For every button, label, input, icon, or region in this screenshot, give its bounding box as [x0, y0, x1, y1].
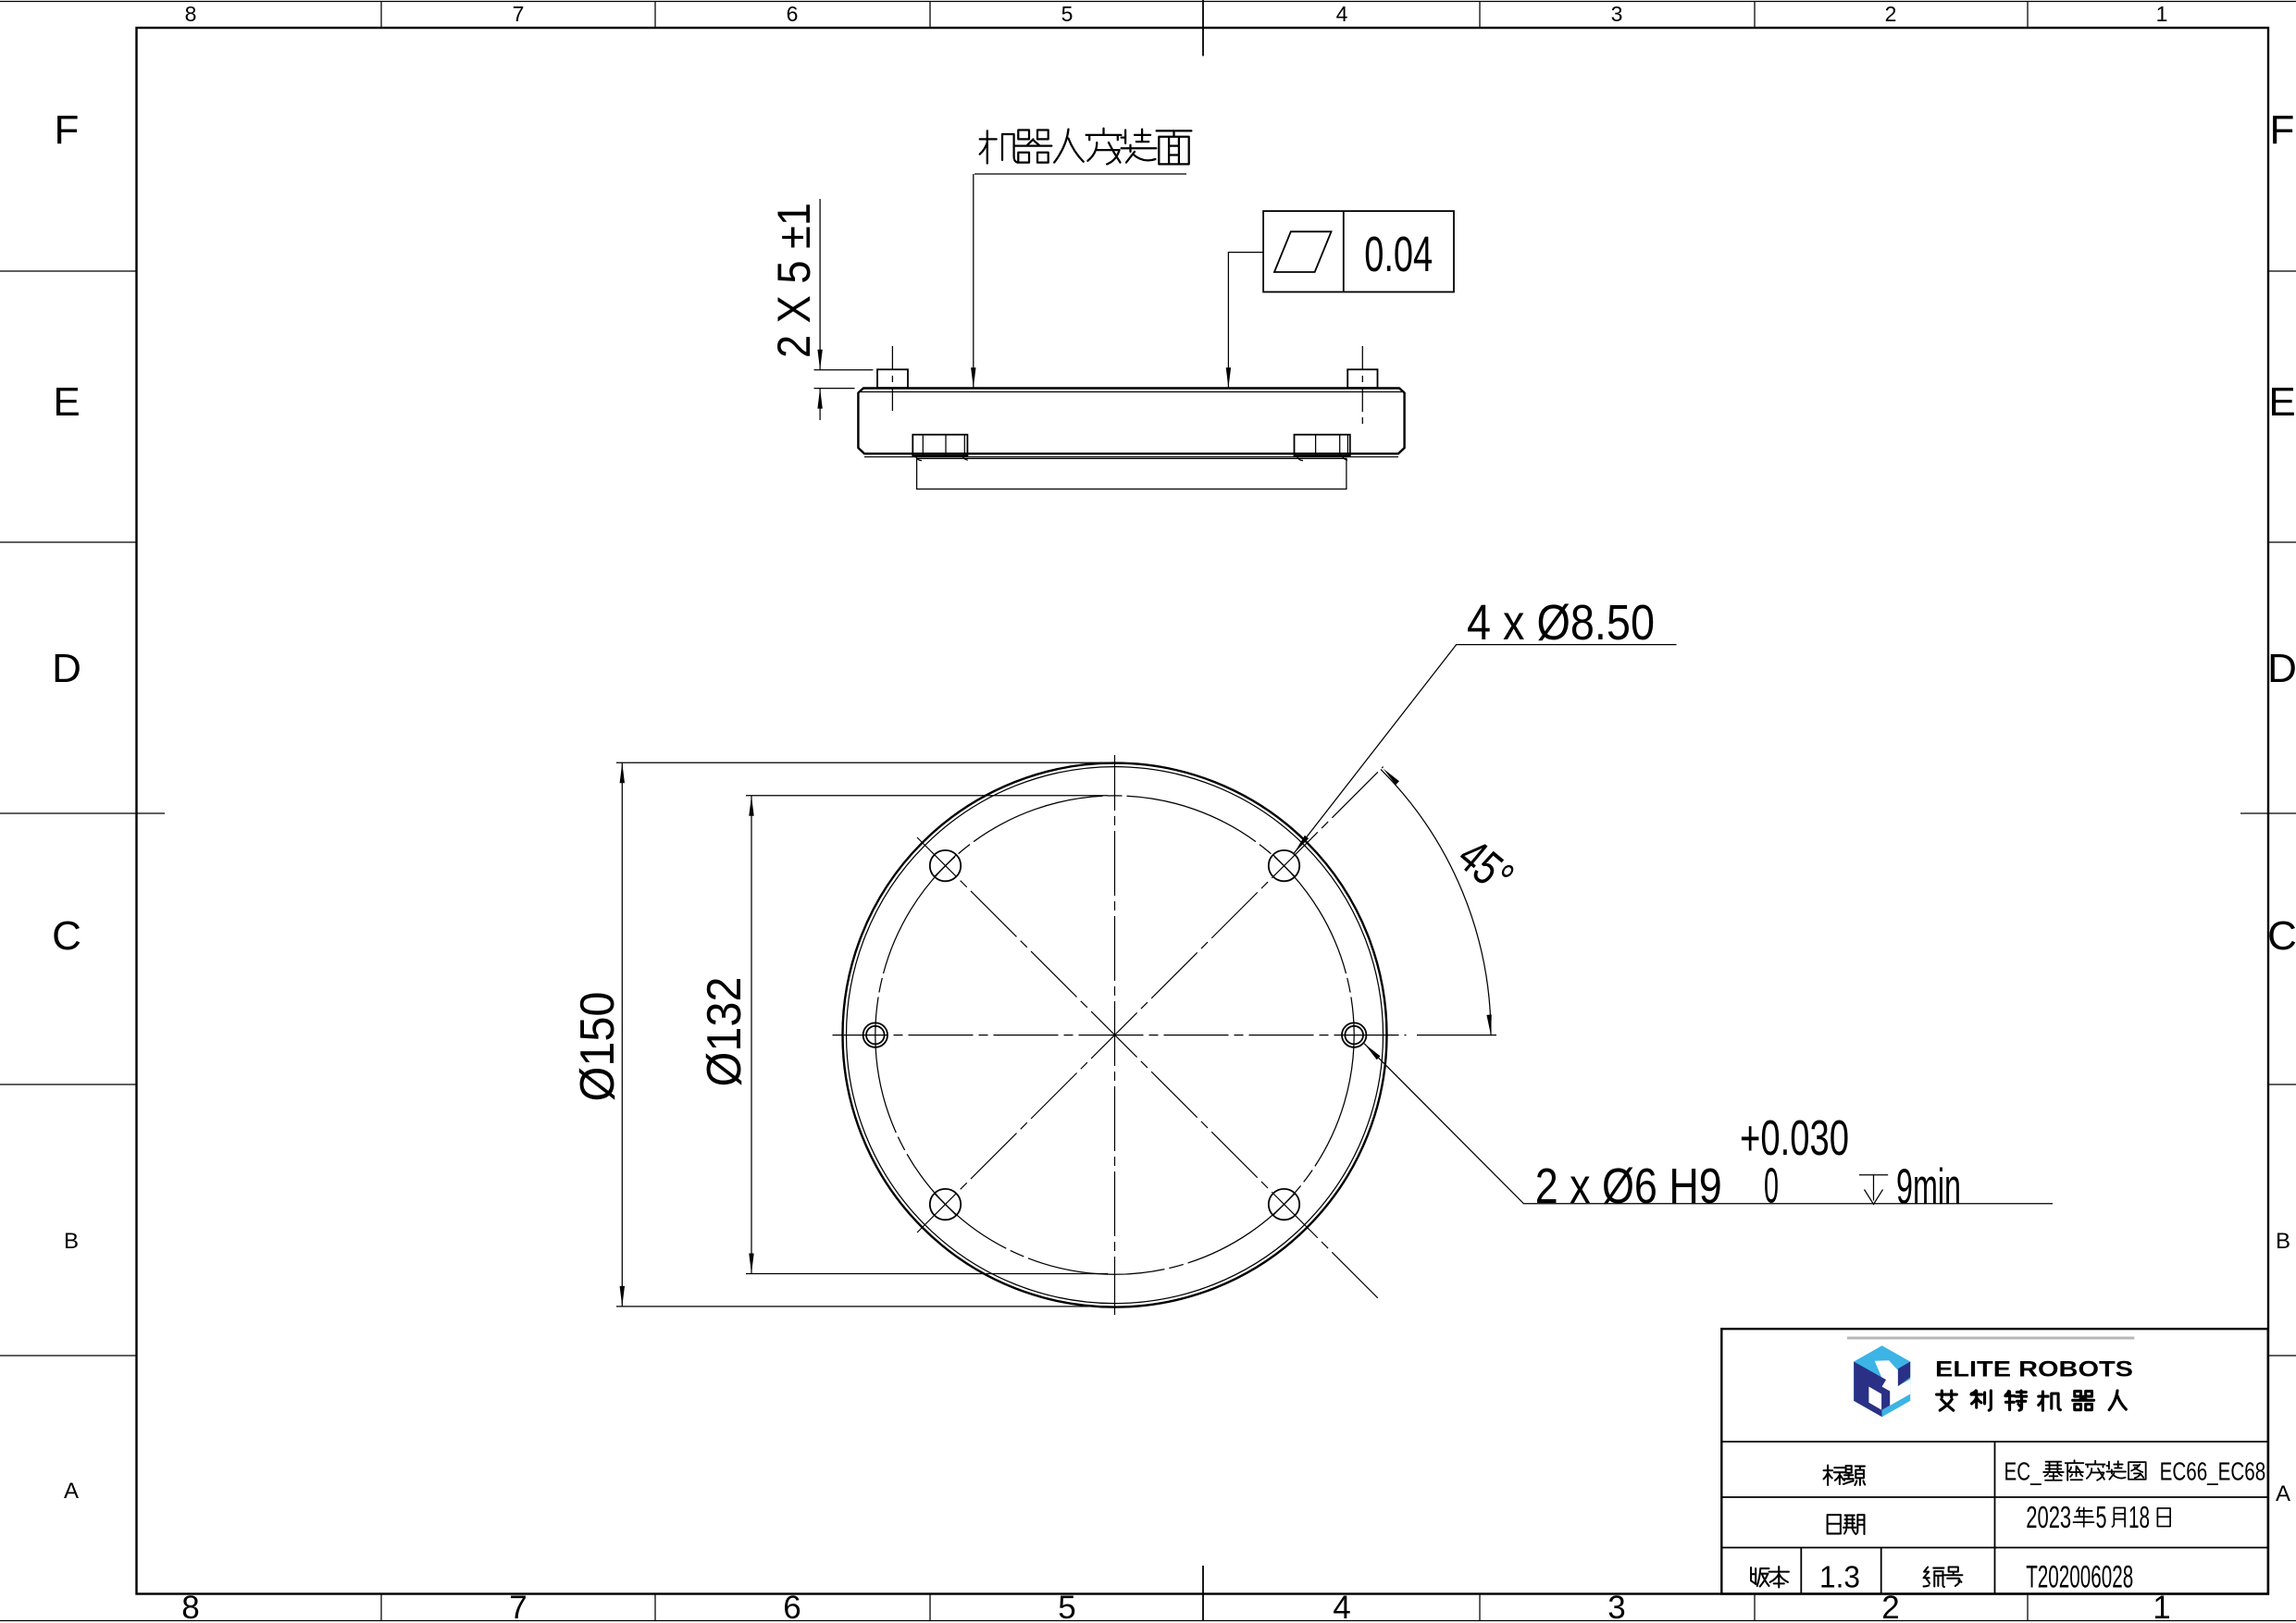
svg-text:2 x Ø6 H9: 2 x Ø6 H9: [1535, 1158, 1722, 1214]
svg-text:T202006028: T202006028: [2026, 1560, 2133, 1595]
svg-text:E: E: [53, 379, 80, 425]
svg-text:1.3: 1.3: [1819, 1560, 1860, 1594]
svg-text:7: 7: [513, 2, 525, 26]
svg-text:2023: 2023: [2026, 1500, 2071, 1534]
svg-text:A: A: [2276, 1481, 2290, 1506]
svg-text:D: D: [52, 646, 81, 691]
svg-text:D: D: [2267, 646, 2296, 691]
svg-text:5: 5: [2096, 1500, 2107, 1534]
svg-text:A: A: [64, 1479, 79, 1504]
svg-text:C: C: [52, 913, 81, 959]
svg-text:7: 7: [509, 1590, 527, 1623]
svg-text:0.04: 0.04: [1364, 227, 1433, 282]
svg-text:1: 1: [2156, 2, 2168, 26]
svg-text:B: B: [64, 1229, 79, 1254]
svg-text:EC_: EC_: [2004, 1457, 2042, 1486]
svg-text:2 X 5 ±1: 2 X 5 ±1: [768, 203, 820, 358]
svg-text:4: 4: [1333, 1590, 1350, 1623]
svg-text:3: 3: [1611, 2, 1623, 26]
svg-text:4: 4: [1336, 2, 1348, 26]
svg-text:0: 0: [1764, 1158, 1779, 1214]
svg-text:B: B: [2276, 1229, 2290, 1254]
svg-text:8: 8: [185, 2, 197, 26]
svg-text:2: 2: [1885, 2, 1897, 26]
svg-text:3: 3: [1607, 1590, 1625, 1623]
svg-text:5: 5: [1061, 2, 1074, 26]
svg-text:EC66_EC68: EC66_EC68: [2160, 1457, 2266, 1486]
svg-text:8: 8: [181, 1590, 199, 1623]
svg-text:6: 6: [783, 1590, 800, 1623]
svg-text:6: 6: [787, 2, 799, 26]
svg-text:9min: 9min: [1896, 1159, 1961, 1215]
svg-text:4 x Ø8.50: 4 x Ø8.50: [1467, 595, 1655, 650]
svg-text:C: C: [2267, 913, 2296, 959]
svg-text:ELITE ROBOTS: ELITE ROBOTS: [1935, 1357, 2133, 1382]
svg-text:5: 5: [1058, 1590, 1075, 1623]
svg-text:18: 18: [2128, 1500, 2150, 1534]
svg-text:Ø150: Ø150: [571, 992, 625, 1102]
svg-text:+0.030: +0.030: [1740, 1110, 1849, 1166]
svg-text:F: F: [55, 107, 80, 153]
svg-text:Ø132: Ø132: [698, 977, 751, 1087]
svg-text:F: F: [2270, 107, 2295, 153]
svg-text:E: E: [2268, 379, 2295, 425]
